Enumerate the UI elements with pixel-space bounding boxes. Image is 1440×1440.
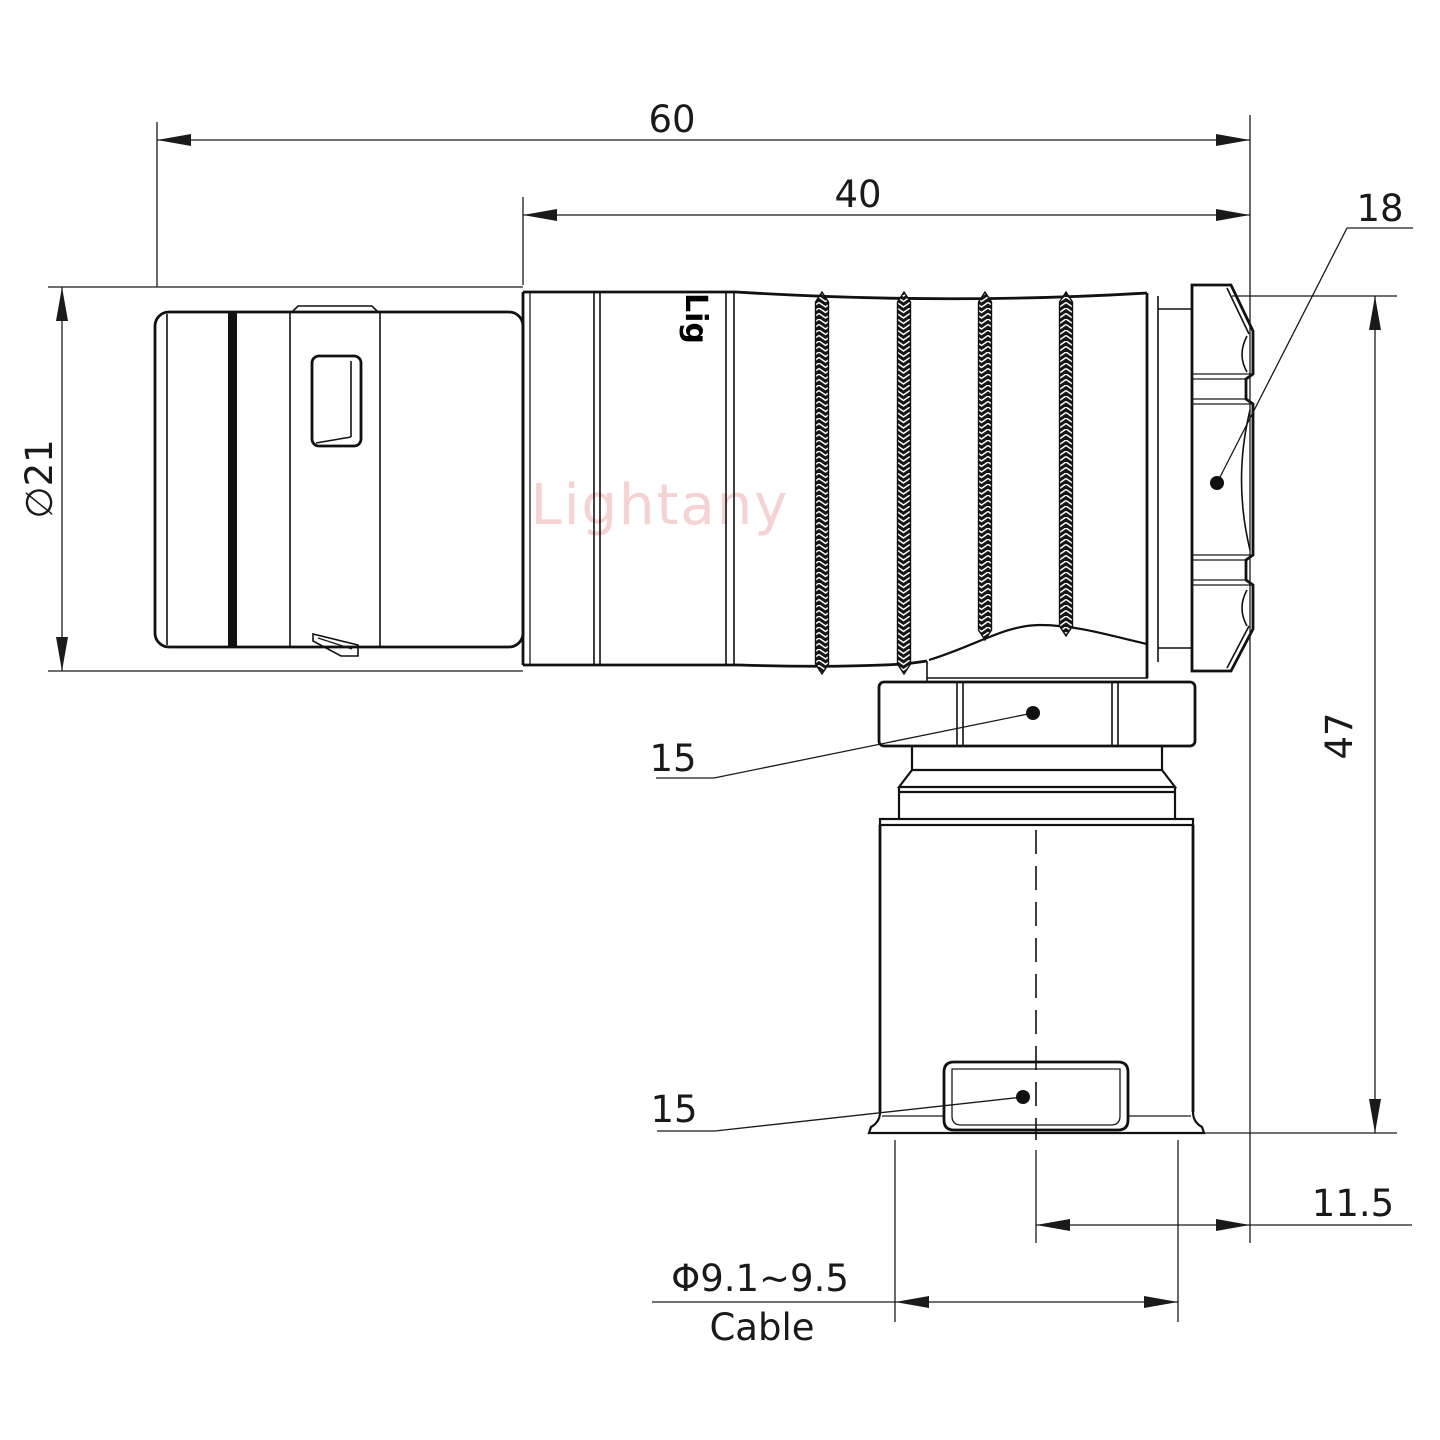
elbow-collar [899, 787, 1175, 819]
sleeve-bottom-latch [313, 634, 358, 656]
knurl-strip-3 [979, 292, 992, 640]
leader-rear-nut: 18 [1210, 187, 1413, 490]
dim-axis-offset: 11.5 [1036, 1150, 1412, 1243]
coupling-collar [1158, 285, 1192, 671]
elbow-section [869, 661, 1204, 1140]
knurl-strip-1 [816, 292, 829, 674]
dim-cable-diameter: Φ9.1~9.5 Cable [652, 1140, 1178, 1349]
dim-overall-height-label: 47 [1318, 712, 1361, 759]
release-sleeve [155, 306, 523, 656]
elbow-flare [899, 770, 1175, 787]
dim-body-diameter-label: ∅21 [18, 439, 61, 518]
dim-overall-length-label: 60 [648, 98, 695, 141]
barrel-top-band [880, 819, 1193, 825]
latch-window [312, 356, 361, 446]
brand-stamp: Lig [678, 293, 713, 344]
knurl-strip-2 [898, 292, 911, 674]
leader-elbow-nut-label: 15 [649, 737, 696, 780]
dim-front-length-label: 40 [834, 173, 881, 216]
strain-relief-boot [736, 292, 1158, 678]
coupling-nut [1192, 285, 1253, 671]
technical-drawing-page: Lightany [0, 0, 1440, 1440]
leader-cable-nut-label: 15 [650, 1088, 697, 1131]
sleeve-grip-band [228, 312, 237, 647]
dim-overall-height: 47 [1204, 296, 1397, 1133]
dim-body-diameter: ∅21 [18, 287, 523, 671]
dim-cable-text-label: Cable [709, 1306, 814, 1349]
connector-drawing: Lightany [0, 0, 1440, 1440]
knurl-strip-4 [1060, 292, 1073, 636]
dim-axis-offset-label: 11.5 [1312, 1182, 1394, 1225]
leader-rear-nut-label: 18 [1356, 187, 1403, 230]
watermark-text: Lightany [531, 473, 790, 538]
connector-side-view: Lig [155, 285, 1253, 1140]
dim-cable-diameter-label: Φ9.1~9.5 [671, 1257, 849, 1300]
dim-front-length: 40 [523, 173, 1250, 285]
elbow-step [912, 746, 1162, 770]
